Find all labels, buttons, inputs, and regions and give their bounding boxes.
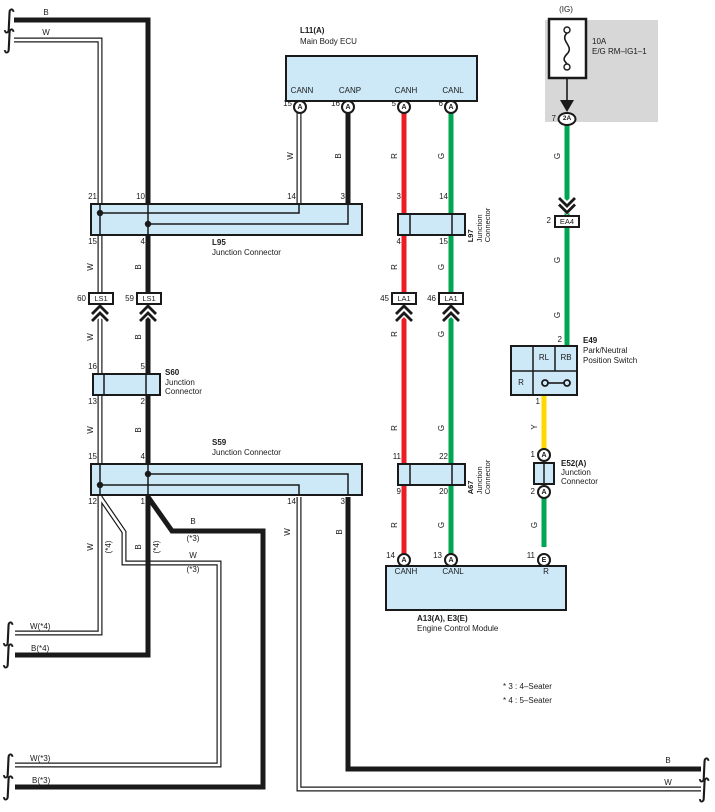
pin-number: 14 (439, 193, 448, 201)
e49-name-line: Park/Neutral (583, 347, 627, 355)
pin-number: 5 (141, 363, 145, 371)
pin-number: 4 (141, 453, 145, 461)
pin-number: 11 (527, 552, 535, 560)
s60-code: S60 (165, 369, 179, 377)
wire-color-label: R (391, 425, 399, 431)
wire-color-label: B (190, 518, 195, 526)
wire-exit-label: B(*3) (32, 777, 50, 785)
pin-number: 13 (88, 398, 97, 406)
wire-exit-label: B (665, 757, 670, 765)
l95-name: Junction Connector (212, 249, 281, 257)
pin-number: 59 (125, 295, 134, 303)
wire-color-label: W (42, 29, 50, 37)
wiring-diagram: LS1 LS1 LA1 LA1 EA4 (0, 0, 715, 812)
pin-number: 3 (341, 193, 345, 201)
fuse-title: (IG) (559, 6, 573, 14)
wire-color-label: W (87, 426, 95, 434)
wire-color-label: G (554, 257, 562, 263)
wire-continuation-brace: ∫ (1, 774, 15, 800)
e49-cell-label: RB (560, 354, 571, 362)
e49-name-line: Position Switch (583, 357, 637, 365)
e52-code: E52(A) (561, 460, 586, 468)
wire-color-label: W (87, 543, 95, 551)
pin-number: 9 (397, 488, 401, 496)
wire-color-label: B (135, 544, 143, 549)
wire-color-label: W (189, 552, 197, 560)
pin-number: 3 (397, 193, 401, 201)
connector-circle: A (293, 100, 307, 114)
s60-name-line: Junction (165, 379, 195, 387)
pin-number: 1 (536, 398, 540, 406)
pin-number: 13 (433, 552, 442, 560)
pin-number: 1 (531, 451, 535, 459)
wire-color-label: R (391, 522, 399, 528)
pin-number: 14 (386, 552, 395, 560)
l97-name-line: Connector (484, 208, 493, 243)
pin-number: 12 (88, 498, 97, 506)
pin-number: 2 (531, 488, 535, 496)
pin-number: 15 (88, 238, 97, 246)
connector-circle: A (397, 553, 411, 567)
ecm-pin-name: R (543, 568, 549, 576)
connector-circle: A (537, 448, 551, 462)
pin-number: 5 (392, 100, 396, 108)
wire-color-label: B (336, 529, 344, 534)
pin-number: 16 (88, 363, 97, 371)
wire-exit-label: W(*4) (30, 623, 50, 631)
pin-number: 3 (341, 498, 345, 506)
pin-number: 4 (397, 238, 401, 246)
ecu-code: L11(A) (300, 27, 324, 35)
wire-color-label: B (135, 334, 143, 339)
pin-number: 16 (331, 100, 340, 108)
fuse-rating: 10A (592, 38, 606, 46)
wire-exit-label: W(*3) (30, 755, 50, 763)
ecu-pin-name: CANL (442, 87, 463, 95)
connector-circle: A (537, 485, 551, 499)
pin-number: 21 (88, 193, 97, 201)
pin-number: 10 (136, 193, 145, 201)
wire-color-label: B (335, 153, 343, 158)
wire-color-label: G (531, 522, 539, 528)
pin-number: 20 (439, 488, 448, 496)
wire-exit-label: W (664, 779, 672, 787)
connector-circle: A (397, 100, 411, 114)
wire-color-label: R (391, 264, 399, 270)
pin-number: 22 (439, 453, 448, 461)
wire-color-label: W (287, 152, 295, 160)
e49-cell-label: RL (539, 354, 549, 362)
wire-variant-label: (*4) (105, 541, 113, 554)
s59-name: Junction Connector (212, 449, 281, 457)
ecm-pin-name: CANL (442, 568, 463, 576)
wire-continuation-brace: ∫ (1, 642, 15, 668)
pin-number: 4 (141, 238, 145, 246)
pin-number: 46 (427, 295, 436, 303)
pin-number: 14 (287, 498, 296, 506)
wire-color-label: G (438, 522, 446, 528)
wire-color-label: G (554, 312, 562, 318)
footnote: * 4 : 5–Seater (503, 697, 552, 705)
l95-code: L95 (212, 239, 226, 247)
pin-number: 2 (558, 336, 562, 344)
wire-color-label: Y (531, 424, 539, 429)
e52-name-line: Connector (561, 478, 598, 486)
ecm-name: Engine Control Module (417, 625, 498, 633)
pin-number: 2 (547, 217, 551, 225)
wire-color-label: G (554, 153, 562, 159)
e49-cell-label: R (518, 379, 524, 387)
wire-variant-label: (*4) (153, 541, 161, 554)
wire-continuation-brace: ∫ (697, 776, 711, 802)
wire-color-label: R (391, 331, 399, 337)
connector-circle: A (341, 100, 355, 114)
ecm-pin-name: CANH (395, 568, 418, 576)
wire-color-label: W (87, 333, 95, 341)
wire-color-label: B (43, 9, 48, 17)
wire-exit-label: B(*4) (31, 645, 49, 653)
e52-name-line: Junction (561, 469, 591, 477)
pin-number: 14 (287, 193, 296, 201)
ecu-pin-name: CANH (395, 87, 418, 95)
wire-color-label: W (87, 263, 95, 271)
pin-number: 11 (393, 453, 401, 461)
ecm-code: A13(A), E3(E) (417, 615, 468, 623)
label-layer: ∫ ∫ ∫ ∫ ∫ ∫ ∫ ∫ B W L11(A) Main Body ECU… (0, 0, 715, 812)
wire-variant-label: (*3) (187, 566, 200, 574)
wire-color-label: G (438, 425, 446, 431)
connector-circle: A (444, 553, 458, 567)
ecu-name: Main Body ECU (300, 38, 357, 46)
wire-color-label: W (284, 528, 292, 536)
wire-color-label: B (135, 427, 143, 432)
connector-circle: A (444, 100, 458, 114)
e49-code: E49 (583, 337, 597, 345)
wire-variant-label: (*3) (187, 535, 200, 543)
a67-name-line: Connector (484, 460, 493, 495)
a67-label: A67 Junction Connector (467, 460, 493, 495)
pin-number: 45 (380, 295, 389, 303)
wire-color-label: G (438, 331, 446, 337)
connector-circle: E (537, 553, 551, 567)
pin-number: 15 (283, 100, 292, 108)
wire-color-label: G (438, 264, 446, 270)
wire-continuation-brace: ∫ (2, 27, 16, 53)
l97-label: L97 Junction Connector (467, 208, 493, 243)
pin-number: 6 (439, 100, 443, 108)
pin-number: 15 (439, 238, 448, 246)
wire-color-label: R (391, 153, 399, 159)
wire-color-label: G (438, 153, 446, 159)
wire-color-label: B (135, 264, 143, 269)
pin-number: 2 (141, 398, 145, 406)
pin-number: 60 (77, 295, 86, 303)
s59-code: S59 (212, 439, 226, 447)
ecu-pin-name: CANN (291, 87, 314, 95)
connector-circle: 2A (558, 112, 577, 126)
pin-number: 7 (552, 115, 556, 123)
fuse-name: E/G RM–IG1–1 (592, 48, 647, 56)
s60-name-line: Connector (165, 388, 202, 396)
ecu-pin-name: CANP (339, 87, 361, 95)
footnote: * 3 : 4–Seater (503, 683, 552, 691)
pin-number: 1 (141, 498, 145, 506)
pin-number: 15 (88, 453, 97, 461)
